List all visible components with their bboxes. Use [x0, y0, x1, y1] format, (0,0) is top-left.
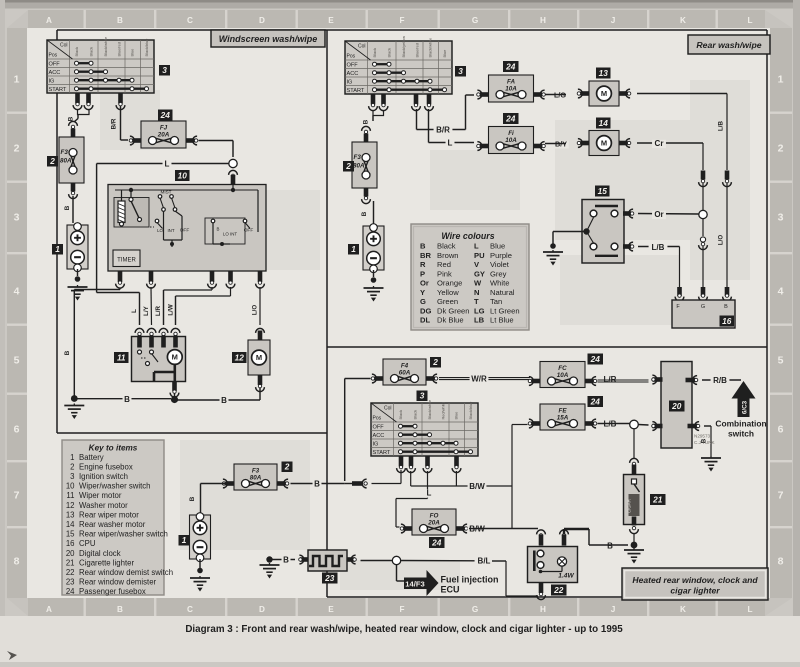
- svg-text:Black/blue: Black/blue: [468, 402, 473, 420]
- svg-text:2: 2: [70, 462, 74, 471]
- svg-text:Rear wiper/washer switch: Rear wiper/washer switch: [79, 530, 168, 539]
- svg-text:1: 1: [14, 74, 20, 86]
- svg-text:24: 24: [505, 61, 516, 71]
- svg-text:N29573: N29573: [694, 434, 711, 439]
- svg-text:Pos: Pos: [49, 53, 58, 59]
- svg-text:ECU: ECU: [441, 585, 460, 595]
- svg-text:20: 20: [671, 401, 682, 411]
- svg-text:B: B: [420, 242, 426, 251]
- svg-text:15A: 15A: [557, 415, 569, 422]
- svg-text:Black/yellow: Black/yellow: [401, 36, 406, 58]
- svg-text:TIMER: TIMER: [117, 258, 136, 264]
- svg-text:10A: 10A: [505, 137, 517, 144]
- svg-text:24: 24: [431, 537, 442, 547]
- svg-text:G: G: [701, 304, 705, 310]
- svg-text:F: F: [399, 605, 404, 614]
- svg-text:IG: IG: [373, 442, 379, 448]
- svg-text:PU: PU: [474, 251, 485, 260]
- svg-text:cigar lighter: cigar lighter: [670, 586, 720, 596]
- svg-text:DL: DL: [420, 316, 430, 325]
- svg-text:4: 4: [778, 286, 784, 298]
- svg-text:OFF: OFF: [49, 62, 61, 68]
- svg-text:8: 8: [778, 556, 784, 568]
- svg-text:12: 12: [235, 352, 245, 362]
- svg-text:L/W: L/W: [168, 304, 175, 315]
- svg-text:LO: LO: [157, 228, 163, 233]
- svg-text:Yellow: Yellow: [437, 288, 459, 297]
- svg-text:Blue/red: Blue/red: [117, 42, 122, 57]
- svg-text:Orange: Orange: [437, 279, 462, 288]
- svg-text:10A: 10A: [505, 86, 517, 93]
- svg-text:10: 10: [178, 170, 188, 180]
- svg-text:Natural: Natural: [490, 288, 515, 297]
- svg-text:2: 2: [284, 461, 290, 471]
- svg-text:13: 13: [599, 68, 609, 78]
- svg-text:C: C: [187, 16, 193, 25]
- svg-text:START: START: [347, 88, 365, 94]
- svg-text:Black/blue: Black/blue: [144, 39, 149, 57]
- svg-text:L: L: [427, 489, 432, 498]
- svg-text:Grey: Grey: [490, 269, 507, 278]
- svg-text:Wiper/washer switch: Wiper/washer switch: [79, 482, 151, 491]
- svg-text:20A: 20A: [157, 132, 170, 139]
- svg-text:Col: Col: [384, 406, 392, 412]
- svg-text:L: L: [131, 309, 138, 313]
- svg-text:B: B: [64, 205, 71, 210]
- svg-text:Lt Green: Lt Green: [490, 306, 520, 315]
- svg-text:6: 6: [778, 424, 784, 436]
- svg-text:60A: 60A: [399, 370, 411, 377]
- svg-text:K: K: [680, 605, 686, 614]
- svg-text:Black: Black: [89, 47, 94, 57]
- svg-text:Pink: Pink: [437, 269, 452, 278]
- svg-text:M: M: [172, 353, 178, 362]
- svg-text:F3: F3: [61, 149, 69, 156]
- svg-text:B: B: [217, 227, 220, 232]
- svg-text:15: 15: [66, 530, 75, 539]
- svg-text:20A: 20A: [427, 520, 440, 527]
- svg-text:Black/white: Black/white: [428, 38, 433, 58]
- svg-text:B/R: B/R: [111, 118, 118, 129]
- svg-text:CIGAR: CIGAR: [627, 499, 632, 513]
- svg-text:Washer motor: Washer motor: [79, 501, 128, 510]
- svg-text:80A: 80A: [353, 163, 365, 170]
- svg-text:5: 5: [14, 355, 20, 367]
- svg-text:Fuel injection: Fuel injection: [441, 575, 499, 585]
- svg-text:B: B: [363, 119, 370, 124]
- svg-text:G: G: [472, 605, 478, 614]
- svg-text:M: M: [601, 139, 607, 148]
- svg-text:OFF: OFF: [373, 425, 385, 431]
- svg-text:23: 23: [66, 578, 75, 587]
- svg-text:Black/white: Black/white: [103, 37, 108, 57]
- svg-text:Lt Blue: Lt Blue: [490, 316, 514, 325]
- svg-text:L/R: L/R: [155, 305, 162, 315]
- svg-text:21: 21: [66, 558, 75, 567]
- svg-text:Dk Green: Dk Green: [437, 306, 470, 315]
- svg-text:L/B: L/B: [718, 120, 725, 130]
- svg-text:K: K: [680, 16, 686, 25]
- svg-text:BR: BR: [420, 251, 431, 260]
- svg-text:E: E: [328, 16, 334, 25]
- svg-text:Or: Or: [420, 279, 429, 288]
- svg-text:B/R: B/R: [436, 126, 450, 135]
- svg-text:M: M: [601, 89, 607, 98]
- svg-text:Black: Black: [398, 410, 403, 420]
- svg-text:Rear washer motor: Rear washer motor: [79, 520, 146, 529]
- svg-text:DG: DG: [420, 306, 431, 315]
- svg-text:22: 22: [553, 585, 564, 595]
- svg-text:P: P: [420, 269, 425, 278]
- svg-text:OFF: OFF: [347, 63, 359, 69]
- svg-text:24: 24: [66, 587, 75, 596]
- svg-text:Digital clock: Digital clock: [79, 549, 121, 558]
- svg-text:LB: LB: [474, 316, 485, 325]
- svg-text:R: R: [420, 260, 426, 269]
- svg-text:F4: F4: [401, 363, 409, 370]
- svg-text:24: 24: [160, 110, 171, 120]
- svg-text:Ignition switch: Ignition switch: [79, 472, 128, 481]
- svg-text:Diagram 3 : Front and rear was: Diagram 3 : Front and rear wash/wipe, he…: [185, 624, 623, 635]
- svg-text:1: 1: [182, 535, 187, 545]
- svg-text:ACC: ACC: [347, 71, 359, 77]
- svg-text:Black/white: Black/white: [427, 400, 432, 420]
- svg-text:14/F3: 14/F3: [405, 580, 424, 589]
- svg-text:LG: LG: [474, 306, 485, 315]
- svg-text:Col: Col: [60, 43, 68, 49]
- svg-text:IG: IG: [49, 79, 55, 85]
- svg-text:G: G: [420, 297, 426, 306]
- svg-text:Key to items: Key to items: [89, 444, 138, 453]
- svg-text:B: B: [724, 304, 728, 310]
- svg-text:B: B: [189, 496, 196, 501]
- svg-text:2: 2: [49, 156, 55, 166]
- svg-text:Green: Green: [437, 297, 458, 306]
- svg-text:24: 24: [505, 113, 516, 123]
- svg-text:L: L: [747, 605, 752, 614]
- svg-text:Black: Black: [413, 410, 418, 420]
- svg-text:D: D: [259, 16, 265, 25]
- svg-text:Blue: Blue: [454, 412, 459, 420]
- svg-text:Fi: Fi: [508, 130, 514, 137]
- svg-text:START: START: [49, 87, 67, 93]
- svg-text:14: 14: [66, 520, 75, 529]
- svg-text:H: H: [540, 16, 546, 25]
- svg-text:B: B: [68, 116, 75, 121]
- svg-text:3: 3: [70, 472, 74, 481]
- svg-text:6/C3: 6/C3: [741, 400, 748, 414]
- svg-text:7: 7: [778, 490, 784, 502]
- svg-text:L/Y: L/Y: [143, 305, 150, 315]
- svg-text:N: N: [474, 288, 479, 297]
- svg-text:1: 1: [351, 244, 356, 254]
- svg-text:4: 4: [14, 286, 20, 298]
- svg-text:Pos: Pos: [373, 416, 382, 422]
- svg-text:80A: 80A: [60, 158, 72, 165]
- svg-text:FJ: FJ: [160, 125, 168, 132]
- svg-text:Y: Y: [420, 288, 425, 297]
- svg-text:INT: INT: [167, 228, 174, 233]
- svg-text:Or: Or: [654, 210, 663, 219]
- svg-text:1: 1: [70, 453, 74, 462]
- svg-text:B: B: [283, 556, 289, 565]
- svg-text:Red: Red: [437, 260, 451, 269]
- svg-text:IG: IG: [347, 80, 353, 86]
- svg-text:A: A: [46, 605, 52, 614]
- svg-text:12: 12: [66, 501, 75, 510]
- svg-text:B/L: B/L: [478, 557, 491, 566]
- svg-text:T: T: [474, 297, 479, 306]
- svg-text:7: 7: [14, 490, 20, 502]
- svg-text:L: L: [747, 16, 752, 25]
- svg-text:1: 1: [55, 244, 60, 254]
- svg-text:3: 3: [458, 66, 463, 76]
- svg-text:Heated rear window, clock and: Heated rear window, clock and: [632, 575, 758, 585]
- svg-text:W/R: W/R: [471, 375, 487, 384]
- svg-text:GY: GY: [474, 269, 485, 278]
- svg-text:Blue: Blue: [442, 50, 447, 58]
- svg-text:B: B: [607, 542, 613, 551]
- svg-text:Engine fusebox: Engine fusebox: [79, 462, 133, 471]
- svg-text:5: 5: [778, 355, 784, 367]
- svg-text:1.4W: 1.4W: [558, 573, 574, 580]
- svg-text:B: B: [64, 350, 71, 355]
- svg-text:B: B: [124, 395, 130, 404]
- svg-text:3: 3: [420, 390, 425, 400]
- svg-text:H: H: [540, 605, 546, 614]
- svg-text:L: L: [474, 242, 479, 251]
- svg-text:Wiper motor: Wiper motor: [79, 491, 122, 500]
- svg-text:20: 20: [66, 549, 75, 558]
- svg-text:Passenger fusebox: Passenger fusebox: [79, 587, 146, 596]
- svg-text:B: B: [314, 480, 320, 489]
- svg-text:Rear wash/wipe: Rear wash/wipe: [696, 40, 761, 50]
- svg-text:CPU: CPU: [79, 539, 96, 548]
- svg-text:Cr: Cr: [655, 139, 664, 148]
- svg-text:Black: Black: [372, 48, 377, 58]
- svg-text:switch: switch: [728, 429, 754, 439]
- svg-text:Combination: Combination: [715, 419, 766, 429]
- svg-text:Black: Black: [387, 48, 392, 58]
- svg-text:Pos: Pos: [347, 54, 356, 60]
- svg-text:Red/white: Red/white: [441, 402, 446, 419]
- svg-text:L/O: L/O: [718, 235, 725, 245]
- svg-text:ACC: ACC: [373, 433, 385, 439]
- svg-text:FE: FE: [558, 408, 567, 415]
- svg-text:80A: 80A: [250, 475, 262, 482]
- svg-text:15: 15: [598, 186, 608, 196]
- svg-text:F3: F3: [252, 468, 260, 475]
- svg-text:L/B: L/B: [652, 243, 665, 252]
- svg-text:FO: FO: [430, 513, 439, 520]
- svg-text:Tan: Tan: [490, 297, 502, 306]
- svg-text:13: 13: [66, 510, 75, 519]
- svg-text:16: 16: [66, 539, 75, 548]
- svg-text:Battery: Battery: [79, 453, 104, 462]
- svg-text:Black: Black: [437, 242, 456, 251]
- svg-text:B: B: [117, 605, 123, 614]
- svg-text:START: START: [373, 450, 391, 456]
- svg-text:W: W: [474, 279, 482, 288]
- svg-text:Violet: Violet: [490, 260, 510, 269]
- svg-text:Black: Black: [74, 47, 79, 57]
- svg-text:M: M: [256, 353, 262, 362]
- svg-text:Brown: Brown: [437, 251, 459, 260]
- svg-text:10: 10: [66, 482, 75, 491]
- svg-text:G: G: [472, 16, 478, 25]
- svg-text:24: 24: [590, 396, 601, 406]
- svg-text:21: 21: [652, 494, 663, 504]
- svg-text:3: 3: [778, 212, 784, 224]
- svg-text:J: J: [611, 605, 616, 614]
- svg-text:3: 3: [14, 212, 20, 224]
- svg-text:14: 14: [599, 118, 609, 128]
- svg-text:3: 3: [162, 65, 167, 75]
- svg-text:C: C: [187, 605, 193, 614]
- svg-text:F3: F3: [354, 154, 362, 161]
- svg-text:FC: FC: [558, 365, 567, 372]
- svg-text:B: B: [221, 396, 227, 405]
- svg-text:OFF: OFF: [244, 228, 254, 234]
- svg-text:11: 11: [117, 352, 126, 362]
- svg-text:Rear wiper motor: Rear wiper motor: [79, 510, 139, 519]
- svg-text:B: B: [361, 211, 368, 216]
- svg-text:J: J: [611, 16, 616, 25]
- svg-text:L: L: [165, 160, 170, 169]
- svg-text:Blue: Blue: [130, 49, 135, 57]
- svg-text:L/O: L/O: [252, 305, 259, 315]
- svg-text:R/B: R/B: [713, 376, 727, 385]
- svg-text:MIST: MIST: [161, 190, 172, 195]
- svg-text:C.J TURK: C.J TURK: [694, 440, 716, 445]
- svg-text:Wire colours: Wire colours: [441, 231, 494, 241]
- svg-text:22: 22: [66, 568, 75, 577]
- svg-text:F: F: [399, 16, 404, 25]
- svg-text:2: 2: [14, 143, 20, 155]
- svg-text:B/W: B/W: [469, 482, 485, 491]
- svg-text:Col: Col: [358, 44, 366, 50]
- svg-text:ACC: ACC: [49, 70, 61, 76]
- svg-text:11: 11: [66, 491, 74, 500]
- svg-text:White: White: [490, 279, 509, 288]
- svg-text:16: 16: [722, 316, 732, 326]
- svg-text:6: 6: [14, 424, 20, 436]
- svg-text:Windscreen wash/wipe: Windscreen wash/wipe: [219, 34, 317, 44]
- svg-text:Blue: Blue: [490, 242, 505, 251]
- svg-text:Rear window demister: Rear window demister: [79, 578, 157, 587]
- svg-text:Rear window demist switch: Rear window demist switch: [79, 568, 173, 577]
- svg-text:OFF: OFF: [180, 228, 190, 234]
- svg-text:Purple: Purple: [490, 251, 512, 260]
- svg-text:Blue/red: Blue/red: [415, 43, 420, 58]
- svg-text:D: D: [259, 605, 265, 614]
- svg-text:L: L: [448, 139, 453, 148]
- svg-text:2: 2: [432, 357, 438, 367]
- svg-text:LO INT: LO INT: [223, 231, 237, 236]
- svg-text:Cigarette lighter: Cigarette lighter: [79, 558, 134, 567]
- svg-text:8: 8: [14, 556, 20, 568]
- svg-text:2: 2: [778, 143, 784, 155]
- svg-text:2: 2: [345, 161, 351, 171]
- svg-text:23: 23: [324, 573, 335, 583]
- svg-text:E: E: [328, 605, 334, 614]
- svg-text:B: B: [117, 16, 123, 25]
- svg-text:1: 1: [778, 74, 784, 86]
- svg-text:Dk Blue: Dk Blue: [437, 316, 464, 325]
- svg-text:FA: FA: [507, 79, 515, 86]
- svg-text:A: A: [46, 16, 52, 25]
- svg-text:10A: 10A: [557, 372, 569, 379]
- svg-text:24: 24: [590, 354, 601, 364]
